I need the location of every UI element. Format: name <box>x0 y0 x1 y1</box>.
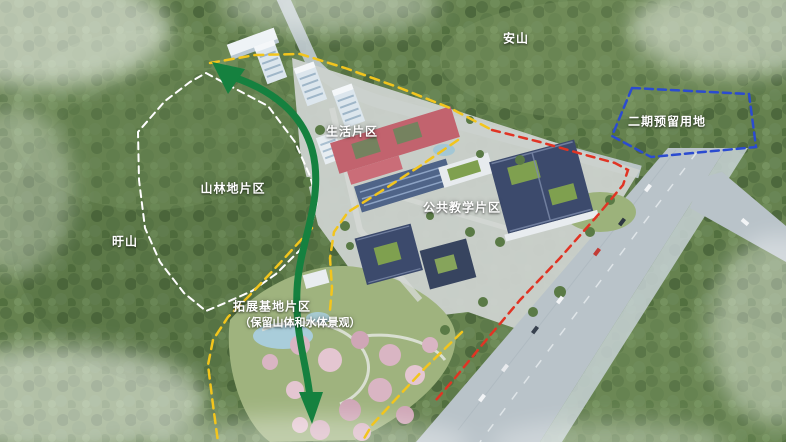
campus-masterplan-aerial-map: 安山 二期预留用地 生活片区 山林地片区 旴山 公共教学片区 拓展基地片区 （保… <box>0 0 786 442</box>
label-expansion-zone-note: （保留山体和水体景观） <box>240 314 361 330</box>
label-living-zone: 生活片区 <box>326 123 378 140</box>
label-mountain-xushan: 旴山 <box>112 233 138 250</box>
label-forest-zone: 山林地片区 <box>200 180 265 197</box>
label-expansion-zone: 拓展基地片区 <box>233 298 311 315</box>
label-mountain-anshan: 安山 <box>503 30 529 47</box>
label-teaching-zone: 公共教学片区 <box>423 199 501 216</box>
aerial-render <box>0 0 786 442</box>
label-phase2-reserved-land: 二期预留用地 <box>628 113 706 130</box>
